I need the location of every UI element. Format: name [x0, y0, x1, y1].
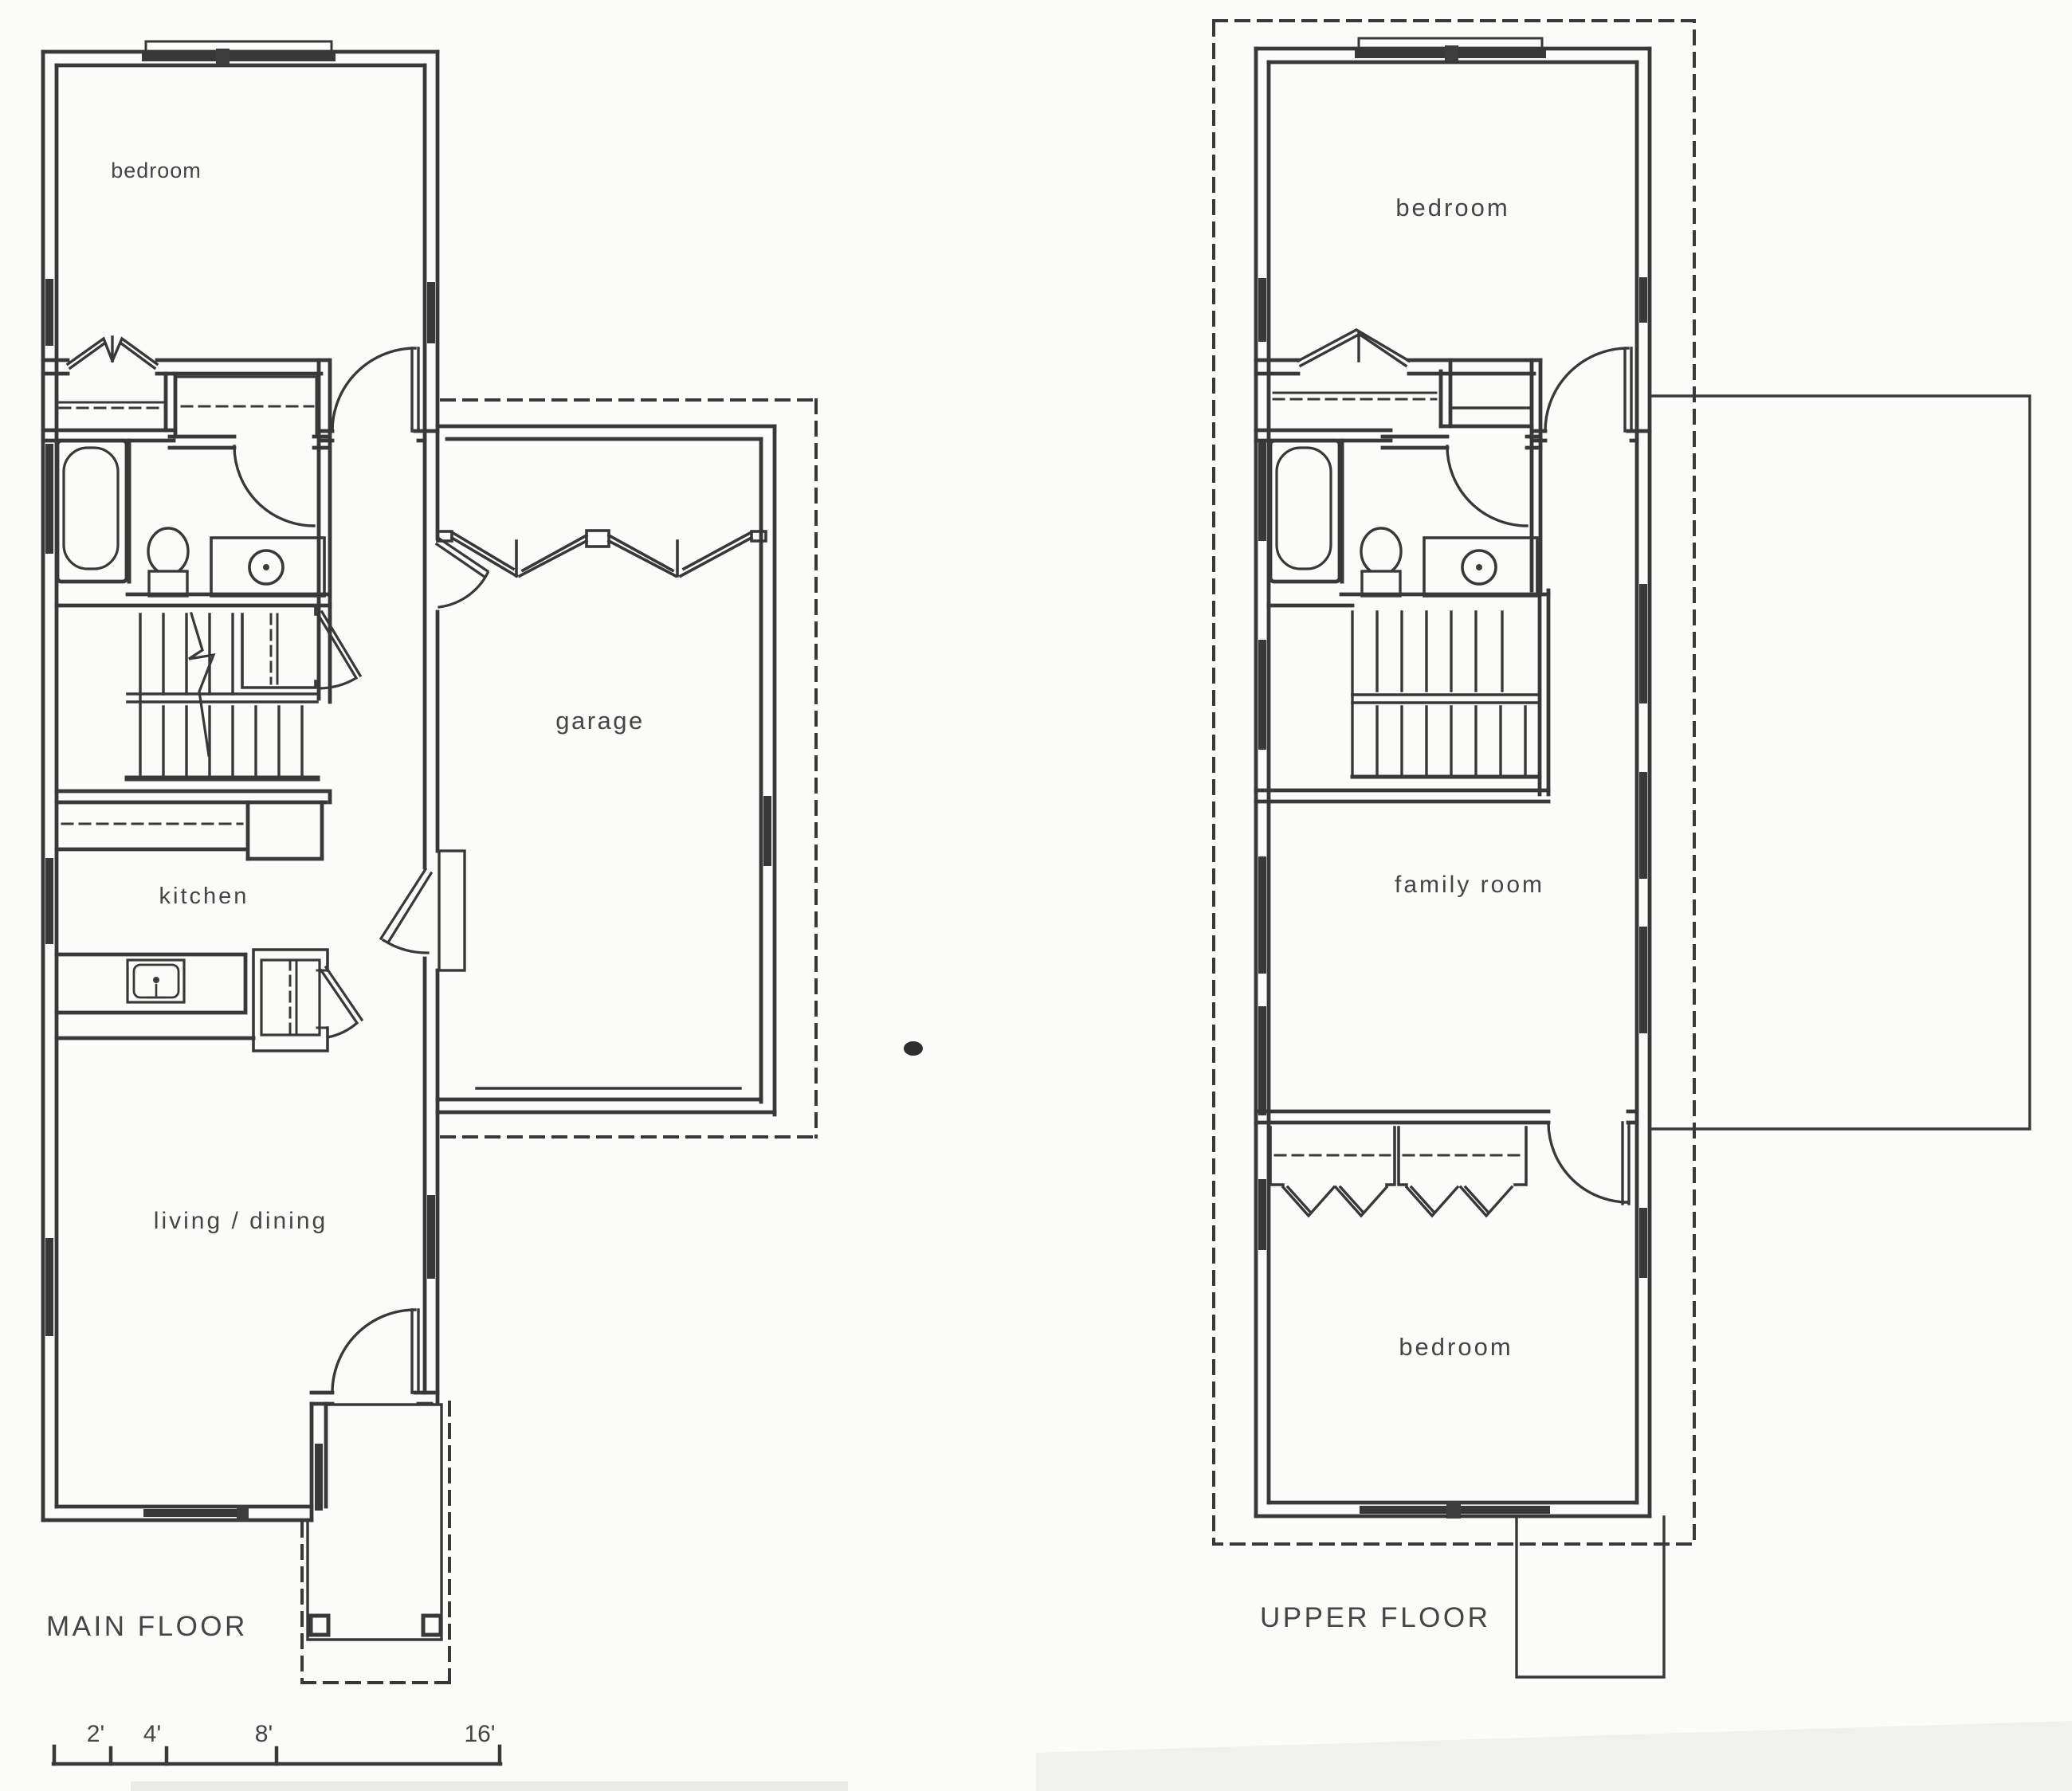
svg-text:MAIN FLOOR: MAIN FLOOR: [46, 1611, 248, 1642]
svg-text:4': 4': [143, 1721, 161, 1747]
svg-text:family room: family room: [1395, 872, 1544, 898]
svg-text:bedroom: bedroom: [1399, 1333, 1513, 1361]
svg-text:2': 2': [87, 1721, 104, 1747]
svg-text:8': 8': [255, 1721, 273, 1747]
svg-text:garage: garage: [555, 707, 645, 735]
svg-text:living / dining: living / dining: [154, 1208, 328, 1234]
svg-text:UPPER FLOOR: UPPER FLOOR: [1260, 1602, 1490, 1633]
svg-text:bedroom: bedroom: [1395, 194, 1509, 221]
svg-text:bedroom: bedroom: [111, 159, 202, 182]
svg-text:16': 16': [464, 1721, 495, 1747]
svg-text:kitchen: kitchen: [159, 884, 249, 909]
